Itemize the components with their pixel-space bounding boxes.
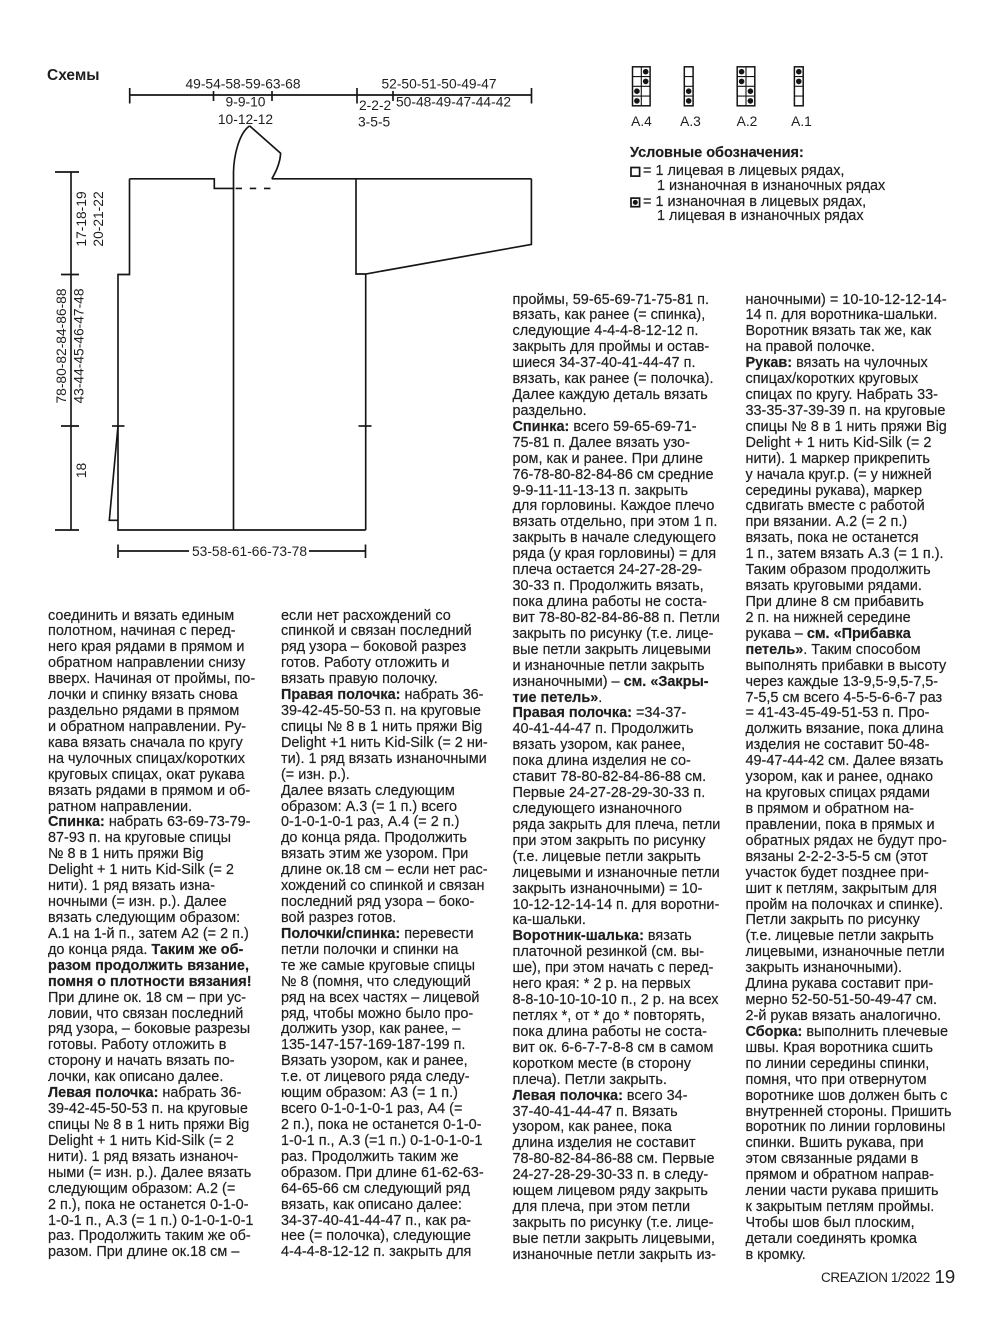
svg-text:2-2-2: 2-2-2 — [359, 98, 391, 113]
svg-text:A.4: A.4 — [631, 114, 652, 129]
svg-text:53-58-61-66-73-78: 53-58-61-66-73-78 — [192, 544, 307, 559]
svg-text:20-21-22: 20-21-22 — [91, 191, 106, 246]
svg-text:9-9-10: 9-9-10 — [226, 95, 266, 110]
svg-text:A.1: A.1 — [791, 114, 812, 129]
svg-text:10-12-12: 10-12-12 — [218, 112, 273, 127]
svg-text:52-50-51-50-49-47: 52-50-51-50-49-47 — [381, 77, 496, 92]
svg-text:17-18-19: 17-18-19 — [74, 191, 89, 247]
svg-text:78-80-82-84-86-88: 78-80-82-84-86-88 — [54, 288, 69, 403]
svg-text:18: 18 — [74, 463, 89, 479]
svg-text:50-48-49-47-44-42: 50-48-49-47-44-42 — [396, 94, 511, 109]
svg-text:43-44-45-46-47-48: 43-44-45-46-47-48 — [72, 288, 87, 403]
svg-text:A.2: A.2 — [737, 114, 758, 129]
svg-text:A.3: A.3 — [680, 114, 701, 129]
svg-text:3-5-5: 3-5-5 — [358, 114, 391, 129]
svg-text:49-54-58-59-63-68: 49-54-58-59-63-68 — [185, 77, 300, 92]
